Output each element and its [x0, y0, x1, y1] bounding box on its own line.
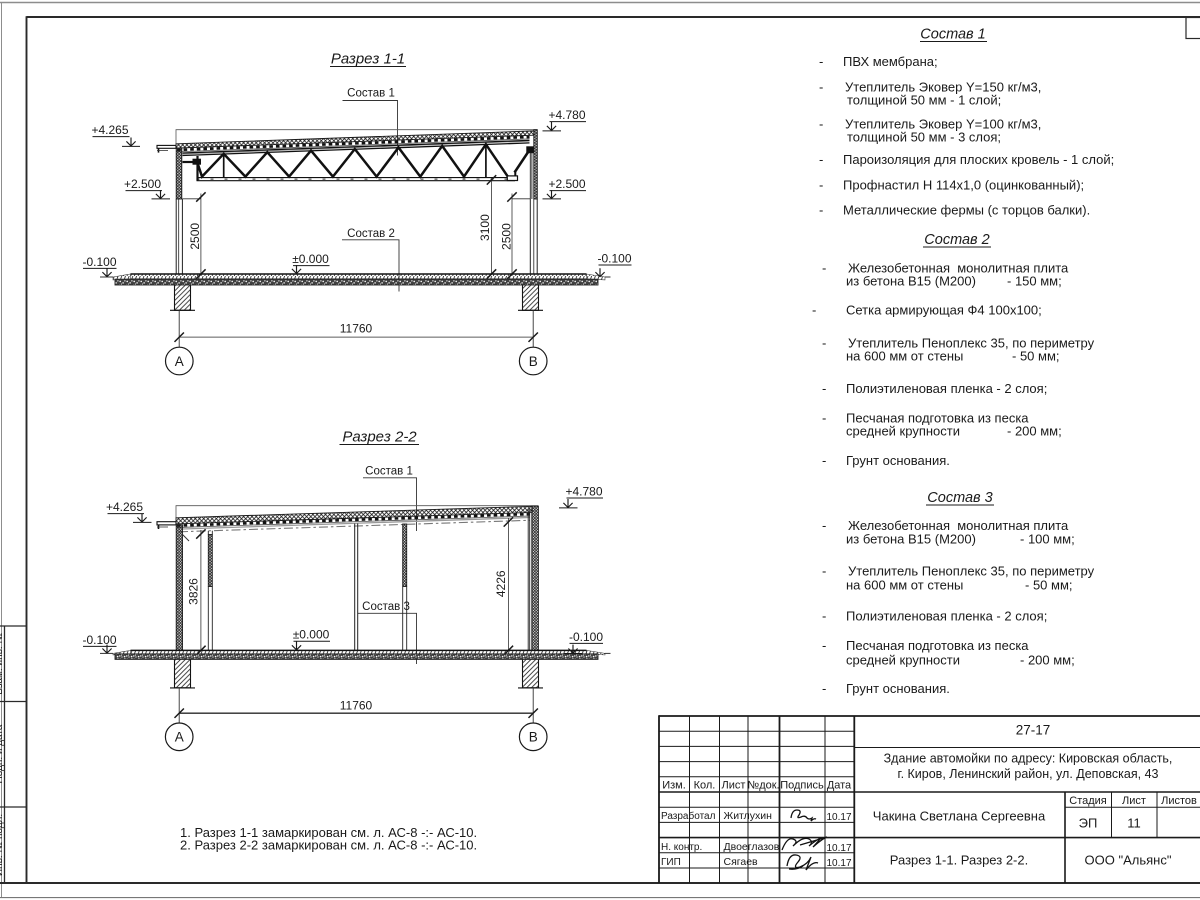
svg-text:4226: 4226 [494, 570, 508, 597]
svg-text:средней крупности: средней крупности [846, 424, 960, 439]
svg-text:- 100 мм;: - 100 мм; [1020, 532, 1075, 547]
svg-text:-: - [822, 411, 826, 426]
svg-text:3826: 3826 [187, 578, 201, 605]
svg-text:Листов: Листов [1161, 795, 1197, 807]
svg-text:Полиэтиленовая пленка - 2 слоя: Полиэтиленовая пленка - 2 слоя; [846, 609, 1047, 624]
svg-text:Разрез 2-2: Разрез 2-2 [342, 429, 417, 446]
svg-text:- 200 мм;: - 200 мм; [1007, 424, 1062, 439]
svg-text:Разработал: Разработал [661, 810, 716, 822]
svg-text:Здание автомойки по адресу: Ки: Здание автомойки по адресу: Кировская об… [884, 752, 1173, 766]
svg-text:11760: 11760 [340, 322, 373, 336]
svg-text:толщиной 50 мм - 3 слоя;: толщиной 50 мм - 3 слоя; [847, 129, 1001, 144]
svg-text:Состав 1: Состав 1 [347, 88, 395, 100]
svg-text:Полиэтиленовая пленка - 2 слоя: Полиэтиленовая пленка - 2 слоя; [846, 381, 1047, 396]
svg-text:В: В [529, 730, 538, 745]
svg-text:А: А [175, 730, 184, 745]
svg-text:10.17: 10.17 [826, 843, 851, 854]
svg-text:+2.500: +2.500 [124, 177, 161, 191]
svg-text:3100: 3100 [478, 214, 492, 241]
svg-text:Н. контр.: Н. контр. [661, 842, 702, 853]
svg-text:Стадия: Стадия [1069, 795, 1107, 807]
svg-text:10.17: 10.17 [826, 858, 851, 869]
svg-text:27-17: 27-17 [1016, 723, 1051, 738]
svg-text:Подпись: Подпись [780, 779, 824, 791]
svg-text:ПВХ мембрана;: ПВХ мембрана; [843, 54, 938, 69]
svg-text:-: - [822, 609, 826, 624]
svg-text:±0.000: ±0.000 [293, 628, 330, 642]
svg-text:средней крупности: средней крупности [846, 653, 960, 668]
svg-text:Лист: Лист [1122, 795, 1146, 807]
svg-text:Лист: Лист [722, 779, 746, 791]
svg-text:-: - [819, 202, 823, 217]
svg-text:Песчаная подготовка из песка: Песчаная подготовка из песка [846, 638, 1029, 653]
svg-text:г. Киров, Ленинский район, ул.: г. Киров, Ленинский район, ул. Деповская… [898, 767, 1159, 781]
svg-text:из бетона В15 (М200): из бетона В15 (М200) [846, 273, 976, 288]
svg-text:2. Разрез 2-2 замаркирован см.: 2. Разрез 2-2 замаркирован см. л. АС-8 -… [180, 838, 477, 853]
svg-text:-: - [822, 381, 826, 396]
svg-text:Металлические фермы (с торцов: Металлические фермы (с торцов балки). [843, 202, 1090, 217]
svg-text:-: - [822, 564, 826, 579]
svg-text:-0.100: -0.100 [82, 255, 116, 269]
svg-text:-: - [812, 303, 816, 318]
svg-text:- 50 мм;: - 50 мм; [1025, 578, 1073, 593]
svg-text:Взам. инв. №: Взам. инв. № [0, 633, 5, 695]
svg-text:-0.100: -0.100 [82, 633, 116, 647]
svg-text:-: - [819, 152, 823, 167]
svg-text:Профнастил Н 114х1,0 (оцинкова: Профнастил Н 114х1,0 (оцинкованный); [843, 177, 1084, 192]
svg-text:11760: 11760 [340, 699, 373, 713]
svg-text:В: В [529, 354, 538, 369]
svg-text:на 600 мм от стены: на 600 мм от стены [846, 578, 963, 593]
svg-text:Разрез 1-1. Разрез 2-2.: Разрез 1-1. Разрез 2-2. [890, 853, 1028, 868]
svg-text:№док.: №док. [747, 779, 779, 791]
svg-text:Подп. и дата: Подп. и дата [0, 724, 5, 783]
svg-text:±0.000: ±0.000 [292, 252, 329, 266]
svg-text:Состав 2: Состав 2 [924, 232, 989, 248]
svg-text:-: - [822, 453, 826, 468]
svg-text:+4.265: +4.265 [91, 123, 128, 137]
svg-text:толщиной 50 мм - 1 слой;: толщиной 50 мм - 1 слой; [847, 92, 1001, 107]
svg-text:11: 11 [1127, 816, 1141, 831]
svg-text:ООО "Альянс": ООО "Альянс" [1085, 853, 1172, 868]
svg-text:Чакина Светлана Сергеевна: Чакина Светлана Сергеевна [873, 809, 1046, 824]
svg-text:- 50 мм;: - 50 мм; [1012, 349, 1060, 364]
svg-text:10.17: 10.17 [826, 812, 851, 823]
svg-text:-: - [819, 80, 823, 95]
svg-text:Сягаев: Сягаев [724, 856, 759, 868]
svg-text:Грунт основания.: Грунт основания. [846, 453, 950, 468]
svg-text:-: - [822, 260, 826, 275]
svg-text:Сетка армирующая Ф4 100х100;: Сетка армирующая Ф4 100х100; [846, 303, 1042, 318]
svg-text:Изм.: Изм. [662, 779, 686, 791]
svg-text:Состав 3: Состав 3 [927, 490, 992, 506]
svg-text:Состав 1: Состав 1 [365, 466, 413, 478]
svg-text:+4.265: +4.265 [106, 500, 143, 514]
svg-text:Житлухин: Житлухин [724, 810, 773, 822]
svg-text:+4.780: +4.780 [565, 485, 602, 499]
svg-text:-: - [819, 177, 823, 192]
svg-text:+2.500: +2.500 [548, 177, 585, 191]
svg-text:Дата: Дата [827, 779, 852, 791]
svg-text:- 200 мм;: - 200 мм; [1020, 653, 1075, 668]
svg-text:-: - [822, 518, 826, 533]
svg-text:-0.100: -0.100 [597, 252, 631, 266]
svg-text:Двоеглазов: Двоеглазов [724, 841, 780, 853]
svg-text:-: - [819, 117, 823, 132]
svg-text:ЭП: ЭП [1079, 816, 1098, 831]
svg-text:-: - [822, 336, 826, 351]
svg-text:Кол.: Кол. [694, 779, 716, 791]
svg-text:Утеплитель Пеноплекс 35, по пе: Утеплитель Пеноплекс 35, по периметру [848, 564, 1095, 579]
svg-text:-0.100: -0.100 [569, 630, 603, 644]
svg-text:Пароизоляция для плоских крове: Пароизоляция для плоских кровель - 1 сло… [843, 152, 1114, 167]
svg-text:2500: 2500 [188, 223, 202, 250]
svg-text:А: А [175, 354, 184, 369]
svg-text:+4.780: +4.780 [548, 108, 585, 122]
svg-text:2500: 2500 [499, 223, 513, 250]
svg-text:Разрез 1-1: Разрез 1-1 [331, 51, 405, 68]
svg-text:-: - [819, 54, 823, 69]
svg-text:Грунт основания.: Грунт основания. [846, 681, 950, 696]
svg-text:-: - [822, 638, 826, 653]
svg-text:из бетона В15 (М200): из бетона В15 (М200) [846, 532, 976, 547]
svg-text:ГИП: ГИП [661, 857, 681, 868]
svg-text:Инв. № подл.: Инв. № подл. [0, 814, 5, 876]
svg-text:Состав 2: Состав 2 [347, 228, 395, 240]
svg-text:Состав 1: Состав 1 [920, 27, 985, 43]
svg-text:на 600 мм от стены: на 600 мм от стены [846, 349, 963, 364]
svg-text:- 150 мм;: - 150 мм; [1007, 273, 1062, 288]
svg-text:-: - [822, 681, 826, 696]
